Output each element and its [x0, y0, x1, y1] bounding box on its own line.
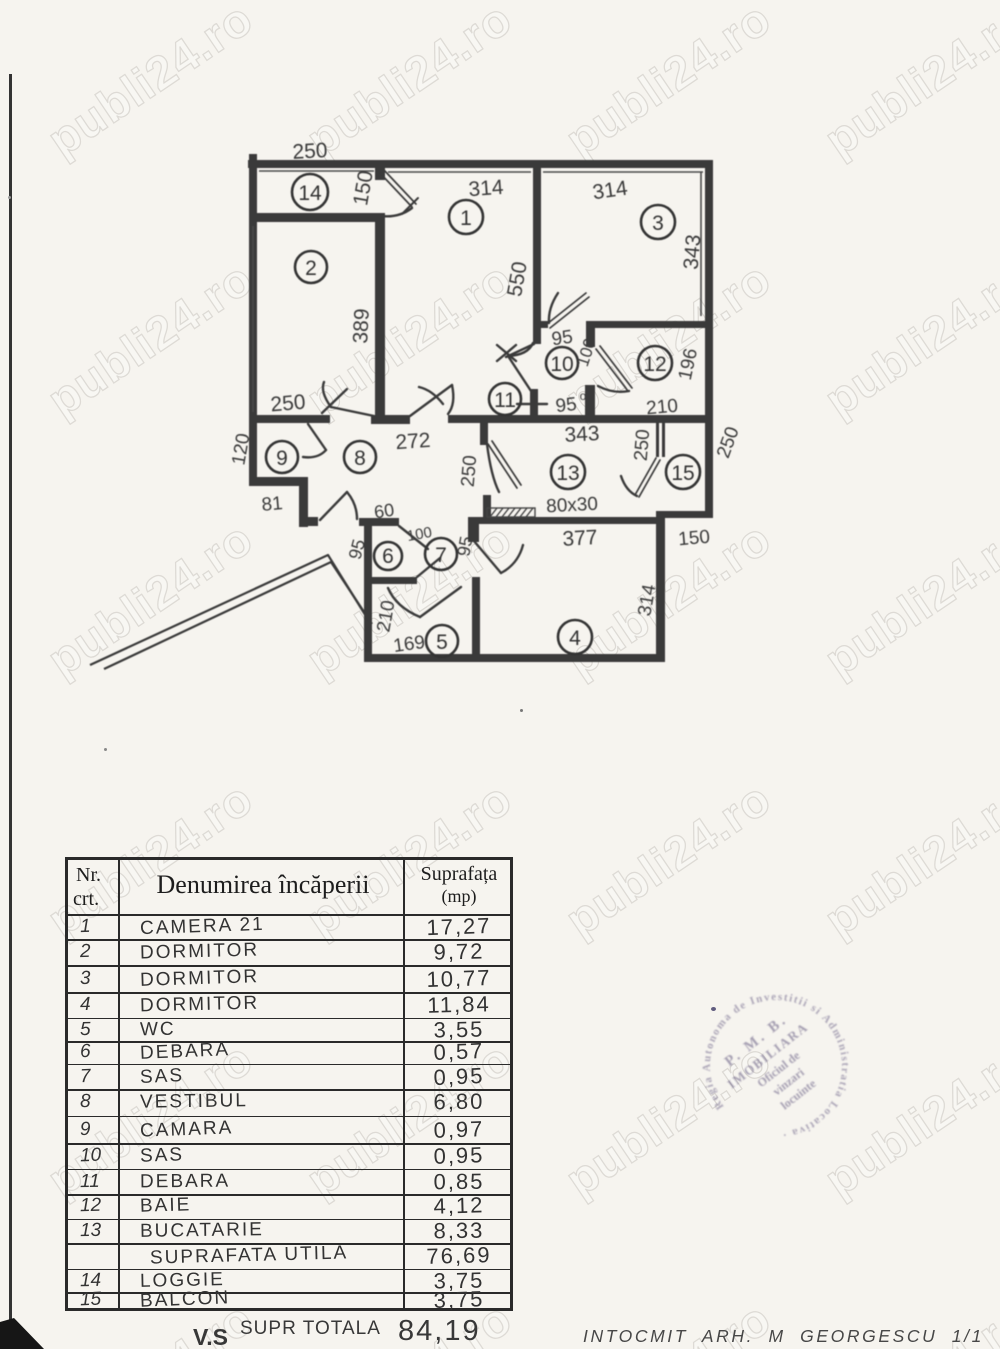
svg-text:o: o — [580, 389, 587, 403]
svg-text:250: 250 — [292, 139, 328, 164]
svg-text:210: 210 — [373, 599, 399, 634]
svg-text:13: 13 — [556, 462, 579, 485]
svg-text:7: 7 — [435, 544, 447, 567]
svg-text:250: 250 — [713, 424, 744, 461]
svg-text:343: 343 — [680, 234, 706, 271]
svg-text:publi24.ro: publi24.ro — [815, 771, 1000, 946]
svg-text:95: 95 — [555, 394, 578, 417]
svg-text:12: 12 — [643, 353, 666, 376]
svg-text:10: 10 — [550, 353, 573, 376]
svg-text:15: 15 — [671, 462, 694, 485]
svg-text:95: 95 — [550, 327, 574, 351]
svg-text:550: 550 — [503, 260, 532, 299]
svg-text:150: 150 — [349, 169, 378, 208]
svg-text:210: 210 — [645, 396, 678, 420]
svg-text:4: 4 — [569, 627, 581, 650]
svg-text:314: 314 — [468, 176, 505, 201]
svg-text:272: 272 — [395, 429, 432, 454]
svg-text:377: 377 — [562, 526, 598, 551]
svg-text:1: 1 — [460, 207, 472, 230]
svg-text:8: 8 — [354, 447, 366, 470]
svg-text:169: 169 — [392, 632, 426, 657]
svg-text:2: 2 — [305, 257, 317, 280]
svg-text:314: 314 — [591, 177, 629, 205]
svg-text:95: 95 — [453, 535, 476, 558]
svg-text:80x30: 80x30 — [546, 494, 599, 518]
svg-text:150: 150 — [677, 527, 710, 551]
svg-text:100: 100 — [573, 336, 600, 369]
svg-text:6: 6 — [382, 545, 394, 568]
svg-text:9: 9 — [276, 447, 288, 470]
svg-text:81: 81 — [261, 493, 284, 516]
svg-text:196: 196 — [675, 347, 702, 382]
svg-text:250: 250 — [631, 428, 655, 461]
svg-text:343: 343 — [564, 422, 600, 447]
svg-text:11: 11 — [494, 389, 516, 412]
svg-text:250: 250 — [458, 454, 482, 487]
svg-text:3: 3 — [652, 212, 664, 235]
svg-text:14: 14 — [298, 182, 322, 205]
svg-text:publi24.ro: publi24.ro — [556, 771, 780, 946]
svg-text:389: 389 — [349, 308, 374, 344]
svg-text:250: 250 — [270, 391, 307, 417]
svg-text:60: 60 — [373, 500, 396, 523]
svg-text:5: 5 — [436, 631, 448, 654]
